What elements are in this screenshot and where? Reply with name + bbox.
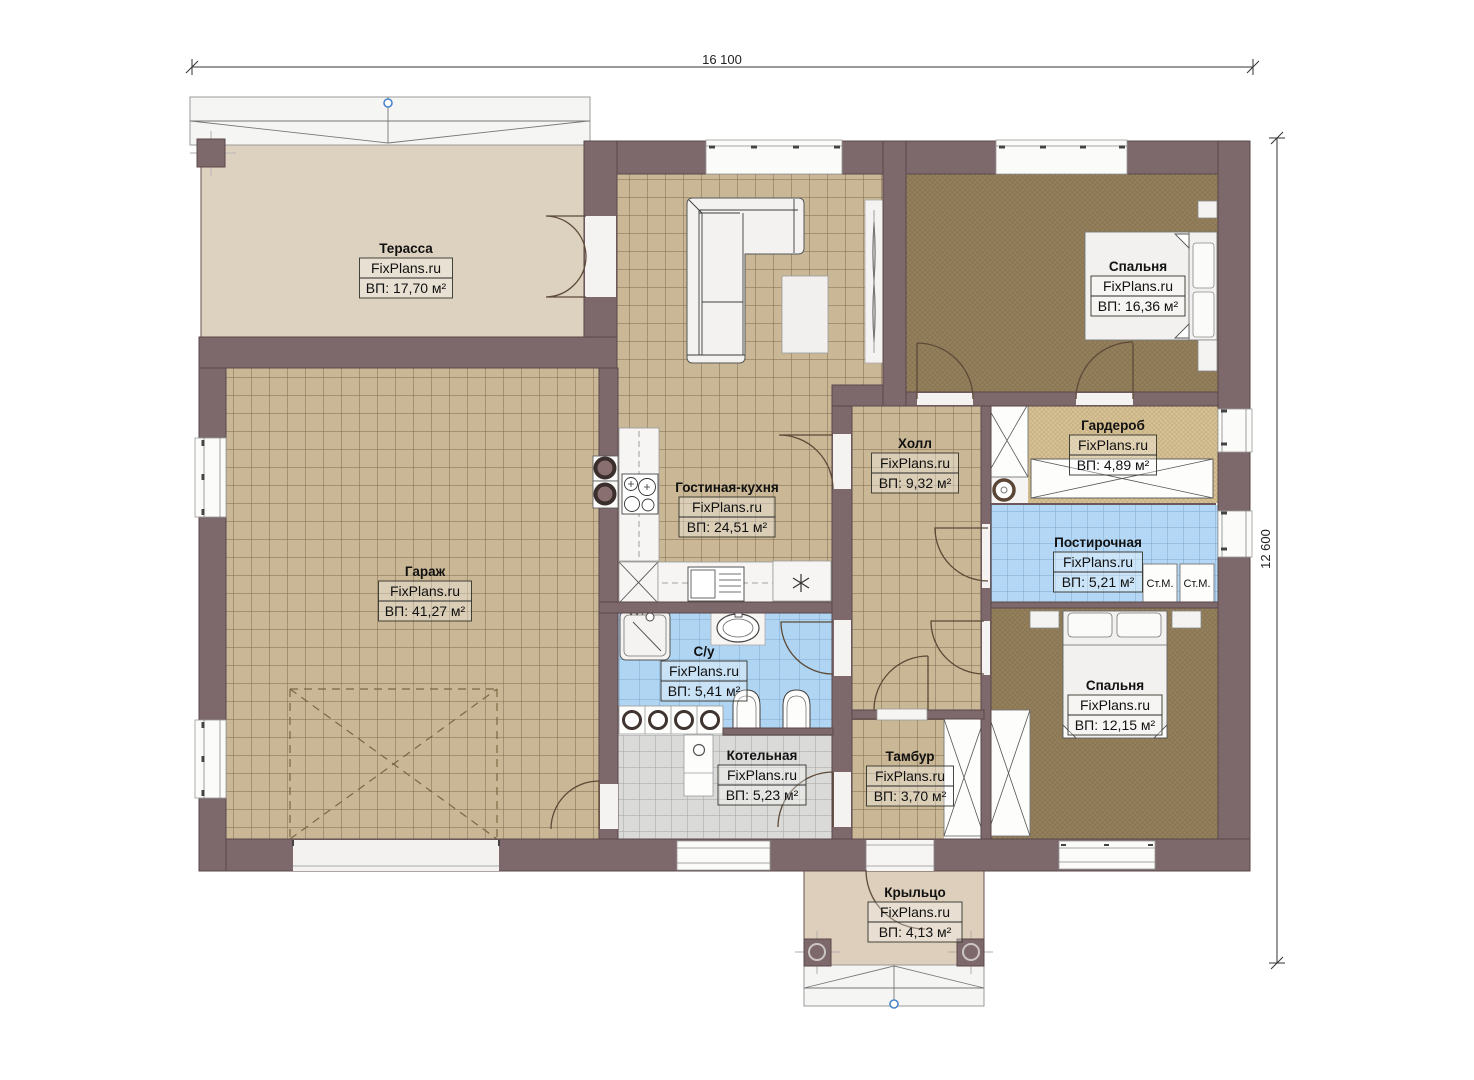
svg-text:ВП: 9,32 м²: ВП: 9,32 м² <box>879 475 952 491</box>
svg-text:ВП: 4,89 м²: ВП: 4,89 м² <box>1077 457 1150 473</box>
svg-text:Гараж: Гараж <box>405 564 446 579</box>
svg-text:ВП: 16,36 м²: ВП: 16,36 м² <box>1098 298 1179 314</box>
svg-text:FixPlans.ru: FixPlans.ru <box>880 904 950 920</box>
svg-text:FixPlans.ru: FixPlans.ru <box>1078 437 1148 453</box>
svg-text:Спальня: Спальня <box>1086 678 1144 693</box>
svg-text:Гардероб: Гардероб <box>1081 418 1145 433</box>
svg-text:ВП: 3,70 м²: ВП: 3,70 м² <box>874 788 947 804</box>
svg-text:FixPlans.ru: FixPlans.ru <box>371 260 441 276</box>
svg-text:ВП: 5,21 м²: ВП: 5,21 м² <box>1062 574 1135 590</box>
svg-text:Гостиная-кухня: Гостиная-кухня <box>675 480 778 495</box>
svg-text:Постирочная: Постирочная <box>1054 535 1142 550</box>
svg-text:12 600: 12 600 <box>1258 529 1273 569</box>
svg-text:FixPlans.ru: FixPlans.ru <box>1063 554 1133 570</box>
svg-text:FixPlans.ru: FixPlans.ru <box>880 455 950 471</box>
svg-text:ВП: 24,51 м²: ВП: 24,51 м² <box>687 519 768 535</box>
svg-text:ВП: 4,13 м²: ВП: 4,13 м² <box>879 924 952 940</box>
svg-text:Холл: Холл <box>898 436 932 451</box>
svg-text:Ст.М.: Ст.М. <box>1146 578 1173 590</box>
svg-text:Тамбур: Тамбур <box>886 749 935 764</box>
svg-text:ВП: 12,15 м²: ВП: 12,15 м² <box>1075 717 1156 733</box>
svg-text:FixPlans.ru: FixPlans.ru <box>692 499 762 515</box>
svg-text:16 100: 16 100 <box>702 52 742 67</box>
svg-text:Ст.М.: Ст.М. <box>1183 578 1210 590</box>
svg-text:Терасса: Терасса <box>379 241 433 256</box>
svg-text:FixPlans.ru: FixPlans.ru <box>669 663 739 679</box>
svg-text:ВП: 17,70 м²: ВП: 17,70 м² <box>366 280 447 296</box>
svg-text:С/у: С/у <box>693 644 715 659</box>
svg-text:ВП: 41,27 м²: ВП: 41,27 м² <box>385 603 466 619</box>
svg-text:Котельная: Котельная <box>727 748 798 763</box>
svg-text:FixPlans.ru: FixPlans.ru <box>727 767 797 783</box>
svg-text:ВП: 5,23 м²: ВП: 5,23 м² <box>726 787 799 803</box>
svg-text:ВП: 5,41 м²: ВП: 5,41 м² <box>668 683 741 699</box>
svg-text:FixPlans.ru: FixPlans.ru <box>1103 278 1173 294</box>
svg-text:FixPlans.ru: FixPlans.ru <box>390 583 460 599</box>
svg-text:Крыльцо: Крыльцо <box>884 885 945 900</box>
svg-text:Спальня: Спальня <box>1109 259 1167 274</box>
svg-text:FixPlans.ru: FixPlans.ru <box>1080 697 1150 713</box>
svg-text:FixPlans.ru: FixPlans.ru <box>875 768 945 784</box>
